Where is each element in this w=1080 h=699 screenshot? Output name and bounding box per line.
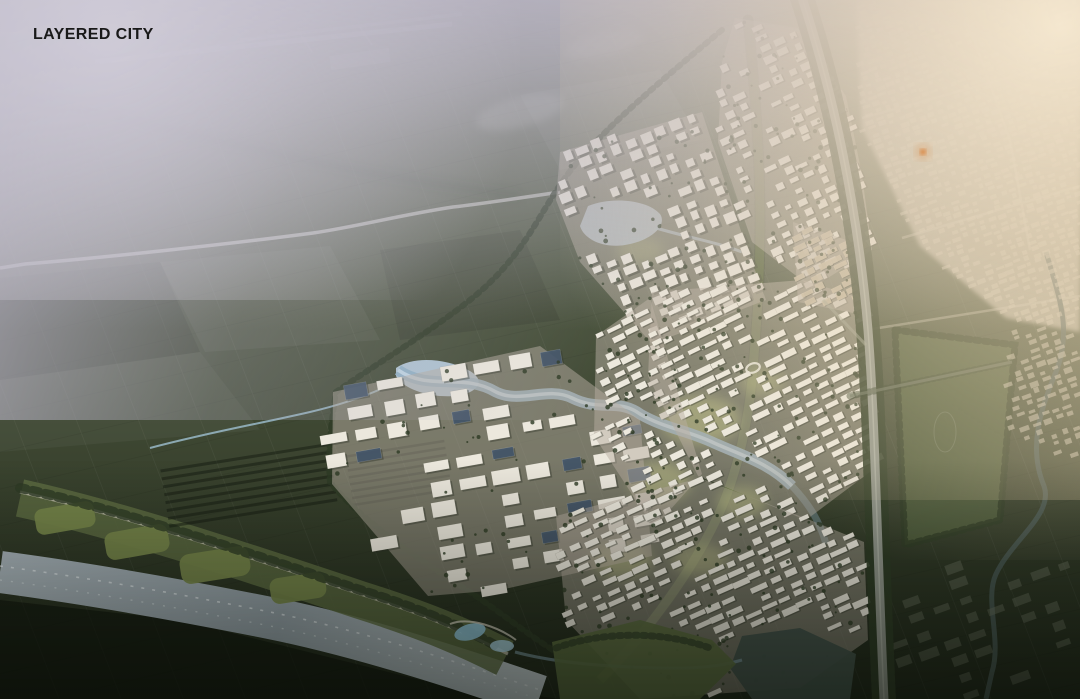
page-title: LAYERED CITY (33, 26, 154, 44)
scene-canvas (0, 0, 1080, 699)
aerial-masterplan-render: LAYERED CITY (0, 0, 1080, 699)
atmosphere-haze (0, 0, 1080, 699)
